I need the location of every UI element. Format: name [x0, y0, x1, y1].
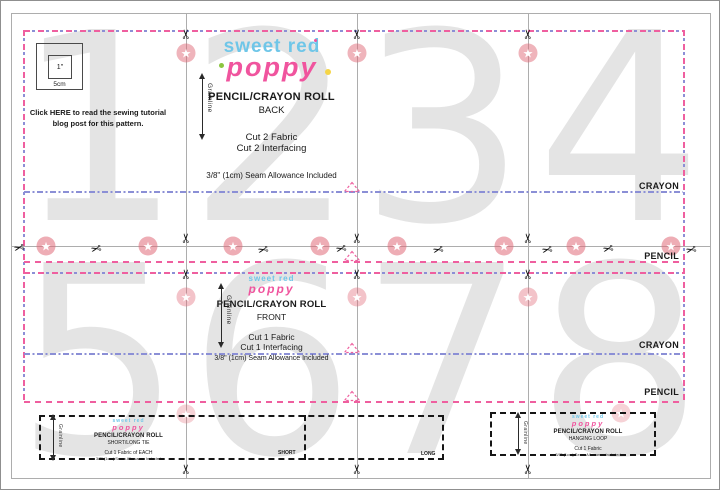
back-grainline-arrow — [202, 79, 203, 134]
back-seam-allowance: 3/8" (1cm) Seam Allowance Included — [186, 171, 357, 180]
tie-short-cut-line — [304, 415, 306, 460]
tutorial-note-pre: Click — [30, 108, 50, 117]
registration-star-icon: ★ — [519, 44, 538, 63]
scissors-icon: ✂ — [351, 233, 364, 244]
front-piece-subtitle: FRONT — [186, 312, 357, 322]
brand-logo-line2: poppy — [191, 54, 353, 81]
loop-grainline-arrow — [518, 418, 519, 449]
back-pencil-label: PENCIL — [609, 251, 679, 261]
back-grainline-label: Grainline — [206, 83, 213, 113]
tutorial-note: Click HERE to read the sewing tutorial b… — [28, 107, 168, 130]
registration-star-icon: ★ — [495, 237, 514, 256]
logo-yellow-dot — [325, 69, 331, 75]
tutorial-note-rest: to read the sewing tutorial — [71, 108, 166, 117]
front-cut-interfacing: Cut 1 Interfacing — [186, 342, 357, 352]
loop-logo-line2: poppy — [533, 420, 643, 428]
tie-piece-title: PENCIL/CRAYON ROLL — [71, 433, 186, 439]
tutorial-link[interactable]: HERE — [50, 108, 71, 117]
brand-logo: sweet red poppy — [191, 37, 353, 81]
front-pencil-label: PENCIL — [609, 387, 679, 397]
front-grainline-label: Grainline — [225, 295, 232, 325]
logo-leaf-dot — [219, 63, 224, 68]
front-brand-logo: sweet red poppy — [186, 275, 357, 295]
scissors-icon: ✂ — [351, 464, 364, 475]
sewing-pattern-sheet: 1 2 3 4 5 6 7 8 1" 5cm Click HERE to rea… — [0, 0, 720, 490]
scissors-icon: ✂ — [180, 233, 193, 244]
scissors-icon: ✂ — [522, 269, 535, 280]
scissors-icon: ✂ — [522, 464, 535, 475]
back-cut-interfacing: Cut 2 Interfacing — [186, 143, 357, 154]
front-cut-fabric: Cut 1 Fabric — [186, 332, 357, 342]
tie-piece-subtitle: SHORT/LONG TIE — [71, 440, 186, 446]
scissors-icon: ✂ — [180, 464, 193, 475]
tie-short-label: SHORT — [278, 450, 296, 456]
loop-grainline-label: Grainline — [522, 421, 528, 445]
loop-brand-logo: sweet red poppy — [533, 415, 643, 428]
tie-long-label: LONG — [421, 451, 435, 457]
scale-test-square-label: 5cm — [37, 81, 82, 88]
notch-triangle — [343, 390, 361, 402]
registration-star-icon: ★ — [567, 237, 586, 256]
registration-star-icon: ★ — [519, 288, 538, 307]
loop-piece-info: PENCIL/CRAYON ROLL HANGING LOOP Cut 1 Fa… — [533, 429, 643, 457]
front-seam-allowance: 3/8" (1cm) Seam Allowance Included — [186, 355, 357, 362]
tie-piece-info: PENCIL/CRAYON ROLL SHORT/LONG TIE Cut 1 … — [71, 433, 186, 461]
registration-star-icon: ★ — [311, 237, 330, 256]
front-piece-info: PENCIL/CRAYON ROLL FRONT Cut 1 Fabric Cu… — [186, 299, 357, 362]
tutorial-note-line2: blog post for this pattern. — [53, 119, 144, 128]
front-logo-line2: poppy — [186, 283, 357, 295]
front-crayon-label: CRAYON — [609, 340, 679, 350]
tie-seam-allowance: 3/8" (1cm) Seam Allowance Included — [71, 456, 186, 461]
loop-piece-subtitle: HANGING LOOP — [533, 436, 643, 442]
back-crayon-label: CRAYON — [609, 181, 679, 191]
notch-triangle — [343, 181, 361, 193]
tie-grainline-label: Grainline — [57, 424, 63, 448]
tie-brand-logo: sweet red poppy — [71, 419, 186, 432]
scissors-icon: ✂ — [522, 233, 535, 244]
back-cut-fabric: Cut 2 Fabric — [186, 132, 357, 143]
scale-test-square-inner: 1" — [48, 55, 72, 79]
registration-star-icon: ★ — [37, 237, 56, 256]
scale-test-square: 1" 5cm — [36, 43, 83, 90]
registration-star-icon: ★ — [139, 237, 158, 256]
front-grainline-arrow — [221, 289, 222, 342]
piece-left-edge — [23, 30, 25, 402]
registration-star-icon: ★ — [224, 237, 243, 256]
loop-piece-title: PENCIL/CRAYON ROLL — [533, 429, 643, 435]
loop-seam-allowance: 3/8" (1cm) Seam Allowance Included — [533, 452, 643, 457]
tie-grainline-arrow — [53, 420, 54, 455]
logo-pink-dot — [314, 39, 317, 42]
registration-star-icon: ★ — [388, 237, 407, 256]
scissors-icon: ✂ — [522, 29, 535, 40]
front-piece-title: PENCIL/CRAYON ROLL — [186, 299, 357, 310]
tie-logo-line2: poppy — [71, 424, 186, 432]
piece-right-edge — [683, 30, 685, 402]
